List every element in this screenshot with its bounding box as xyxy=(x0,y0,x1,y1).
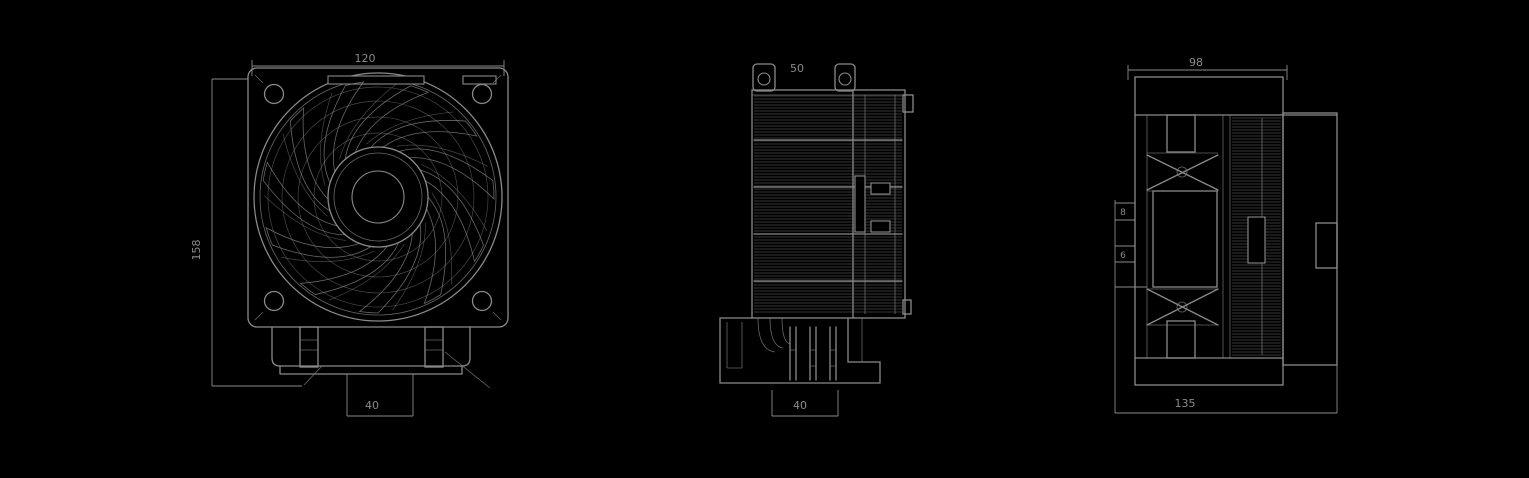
dim-label-side-bottom: 40 xyxy=(793,399,807,412)
side-top-screws xyxy=(753,64,855,91)
drawing-canvas: 120 158 40 xyxy=(0,0,1529,478)
side-fin-texture xyxy=(754,96,902,312)
dim-label-front-bottom: 40 xyxy=(365,399,379,412)
technical-drawing-svg: 120 158 40 xyxy=(0,0,1529,478)
dim-label-profile-bottom: 135 xyxy=(1175,397,1196,410)
side-mounting-bracket xyxy=(720,318,880,383)
profile-body xyxy=(1135,77,1337,385)
dim-label-front-left: 158 xyxy=(190,240,203,261)
profile-view: 98 8 6 135 xyxy=(1115,56,1337,413)
dim-label-profile-top: 98 xyxy=(1189,56,1203,69)
dim-label-profile-left-b: 6 xyxy=(1120,251,1126,261)
side-view: 50 40 xyxy=(720,62,913,416)
side-dimensions: 50 40 xyxy=(772,62,838,416)
front-fan-hub xyxy=(328,147,428,247)
dim-label-profile-left-a: 8 xyxy=(1120,208,1126,218)
dim-label-front-top: 120 xyxy=(355,52,376,65)
dim-label-side-top: 50 xyxy=(790,62,804,75)
front-view: 120 158 40 xyxy=(190,52,508,416)
profile-dimensions: 98 8 6 135 xyxy=(1115,56,1337,413)
front-mounting-bracket xyxy=(272,327,490,388)
